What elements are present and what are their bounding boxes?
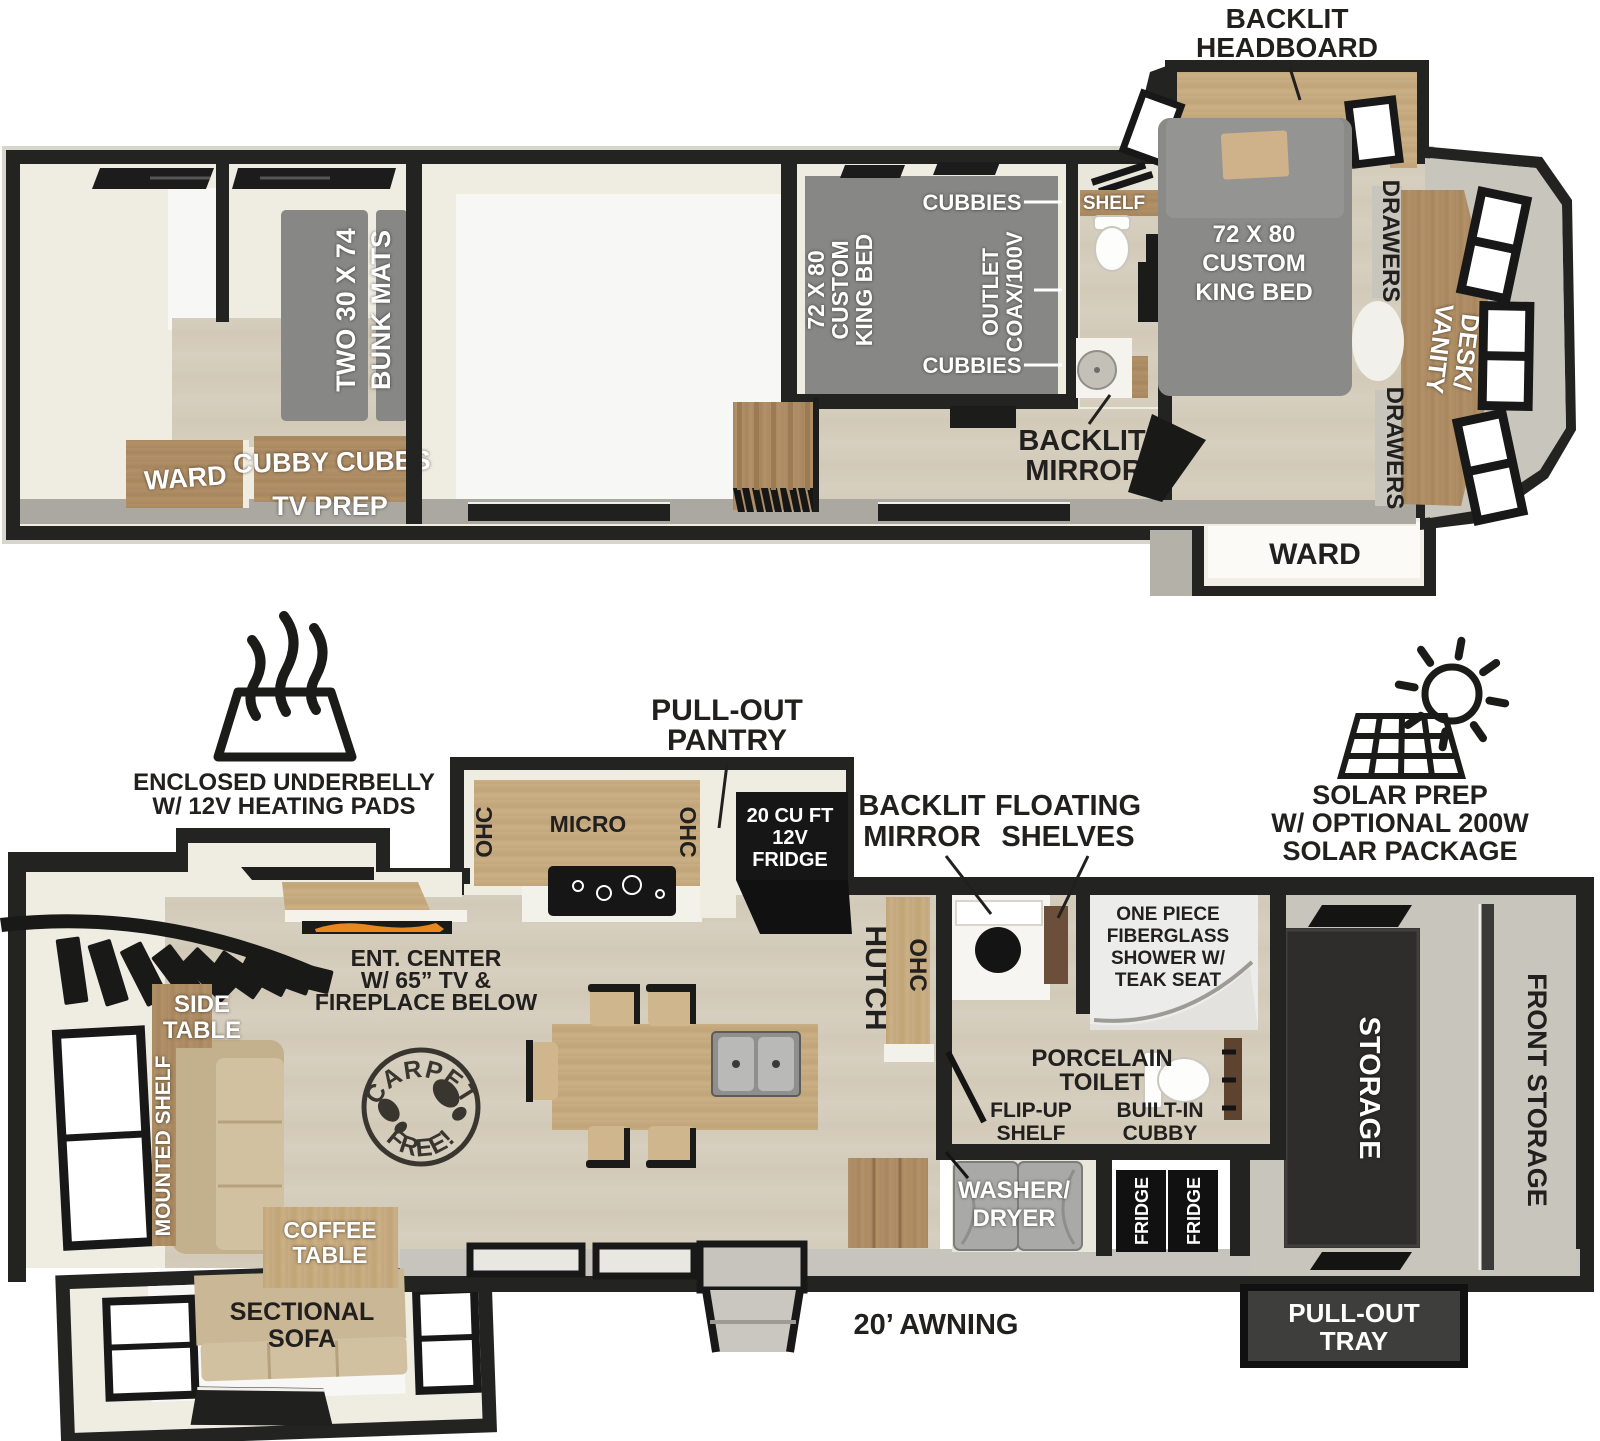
svg-text:FRONT STORAGE: FRONT STORAGE bbox=[1522, 973, 1552, 1207]
svg-text:KING BED: KING BED bbox=[851, 234, 877, 346]
svg-text:FLOATING: FLOATING bbox=[995, 790, 1141, 822]
svg-text:MOUNTED SHELF: MOUNTED SHELF bbox=[152, 1055, 175, 1236]
svg-text:SHOWER W/: SHOWER W/ bbox=[1111, 948, 1226, 969]
svg-text:SHELF: SHELF bbox=[997, 1122, 1066, 1145]
svg-text:SOFA: SOFA bbox=[268, 1325, 336, 1353]
svg-text:TEAK SEAT: TEAK SEAT bbox=[1115, 970, 1222, 991]
svg-text:PANTRY: PANTRY bbox=[667, 724, 787, 757]
svg-text:TABLE: TABLE bbox=[293, 1242, 368, 1268]
svg-text:SOLAR PACKAGE: SOLAR PACKAGE bbox=[1282, 836, 1517, 866]
svg-text:TWO 30 X 74: TWO 30 X 74 bbox=[331, 228, 361, 392]
svg-text:PORCELAIN: PORCELAIN bbox=[1031, 1045, 1172, 1072]
svg-text:CUBBY CUBES: CUBBY CUBES bbox=[233, 445, 431, 478]
svg-text:MICRO: MICRO bbox=[550, 811, 627, 837]
svg-text:DRYER: DRYER bbox=[972, 1205, 1055, 1232]
svg-text:BUNK MATS: BUNK MATS bbox=[366, 230, 396, 390]
svg-text:TOILET: TOILET bbox=[1060, 1069, 1145, 1096]
svg-text:CUSTOM: CUSTOM bbox=[1202, 250, 1306, 277]
svg-text:FRIDGE: FRIDGE bbox=[752, 849, 828, 871]
svg-text:12V: 12V bbox=[772, 827, 808, 849]
svg-text:MIRROR: MIRROR bbox=[863, 821, 981, 853]
svg-text:ONE PIECE: ONE PIECE bbox=[1116, 904, 1219, 925]
svg-text:FIBERGLASS: FIBERGLASS bbox=[1107, 926, 1229, 947]
svg-text:TABLE: TABLE bbox=[163, 1017, 241, 1044]
svg-text:72 X 80: 72 X 80 bbox=[1213, 221, 1296, 248]
svg-text:FIREPLACE BELOW: FIREPLACE BELOW bbox=[315, 989, 538, 1015]
svg-text:CUBBY: CUBBY bbox=[1123, 1122, 1198, 1145]
svg-text:COFFEE: COFFEE bbox=[283, 1217, 376, 1243]
svg-text:OHC: OHC bbox=[904, 938, 931, 991]
svg-text:SHELF: SHELF bbox=[1083, 193, 1145, 214]
svg-text:PULL-OUT: PULL-OUT bbox=[651, 694, 803, 727]
svg-text:OUTLET: OUTLET bbox=[978, 247, 1003, 336]
svg-text:OHC: OHC bbox=[675, 806, 701, 857]
svg-text:DRAWERS: DRAWERS bbox=[1377, 180, 1404, 303]
svg-text:WARD: WARD bbox=[1269, 538, 1361, 571]
svg-text:FRIDGE: FRIDGE bbox=[1184, 1177, 1204, 1245]
svg-text:20 CU FT: 20 CU FT bbox=[747, 805, 834, 827]
svg-text:MIRROR: MIRROR bbox=[1025, 455, 1143, 487]
svg-text:W/ OPTIONAL 200W: W/ OPTIONAL 200W bbox=[1271, 808, 1529, 838]
svg-text:DRAWERS: DRAWERS bbox=[1381, 387, 1408, 510]
svg-text:BUILT-IN: BUILT-IN bbox=[1116, 1099, 1203, 1122]
svg-text:OHC: OHC bbox=[471, 806, 497, 857]
svg-text:SOLAR PREP: SOLAR PREP bbox=[1312, 780, 1488, 810]
svg-text:WARD: WARD bbox=[143, 460, 227, 496]
svg-text:SIDE: SIDE bbox=[174, 991, 230, 1018]
svg-text:ENCLOSED UNDERBELLY: ENCLOSED UNDERBELLY bbox=[133, 769, 435, 796]
svg-text:BACKLIT: BACKLIT bbox=[1018, 425, 1146, 457]
svg-text:20’ AWNING: 20’ AWNING bbox=[854, 1309, 1019, 1341]
svg-text:SHELVES: SHELVES bbox=[1001, 821, 1134, 853]
svg-text:FLIP-UP: FLIP-UP bbox=[990, 1099, 1072, 1122]
svg-text:FRIDGE: FRIDGE bbox=[1132, 1177, 1152, 1245]
svg-text:TV PREP: TV PREP bbox=[272, 491, 388, 521]
svg-text:W/ 12V HEATING PADS: W/ 12V HEATING PADS bbox=[152, 793, 415, 820]
svg-text:HEADBOARD: HEADBOARD bbox=[1196, 32, 1378, 63]
svg-text:BACKLIT: BACKLIT bbox=[858, 790, 986, 822]
svg-text:COAX/100V: COAX/100V bbox=[1002, 231, 1027, 352]
svg-text:STORAGE: STORAGE bbox=[1353, 1017, 1385, 1160]
svg-text:WASHER/: WASHER/ bbox=[958, 1177, 1070, 1204]
svg-text:CUSTOM: CUSTOM bbox=[827, 240, 853, 339]
svg-text:PULL-OUT: PULL-OUT bbox=[1288, 1298, 1420, 1328]
svg-text:TRAY: TRAY bbox=[1320, 1326, 1388, 1356]
svg-text:CUBBIES: CUBBIES bbox=[922, 190, 1021, 215]
svg-text:CUBBIES: CUBBIES bbox=[922, 353, 1021, 378]
svg-text:BACKLIT: BACKLIT bbox=[1226, 3, 1349, 34]
svg-text:SECTIONAL: SECTIONAL bbox=[230, 1298, 374, 1326]
svg-text:72 X 80: 72 X 80 bbox=[803, 250, 829, 329]
svg-text:KING BED: KING BED bbox=[1195, 279, 1312, 306]
